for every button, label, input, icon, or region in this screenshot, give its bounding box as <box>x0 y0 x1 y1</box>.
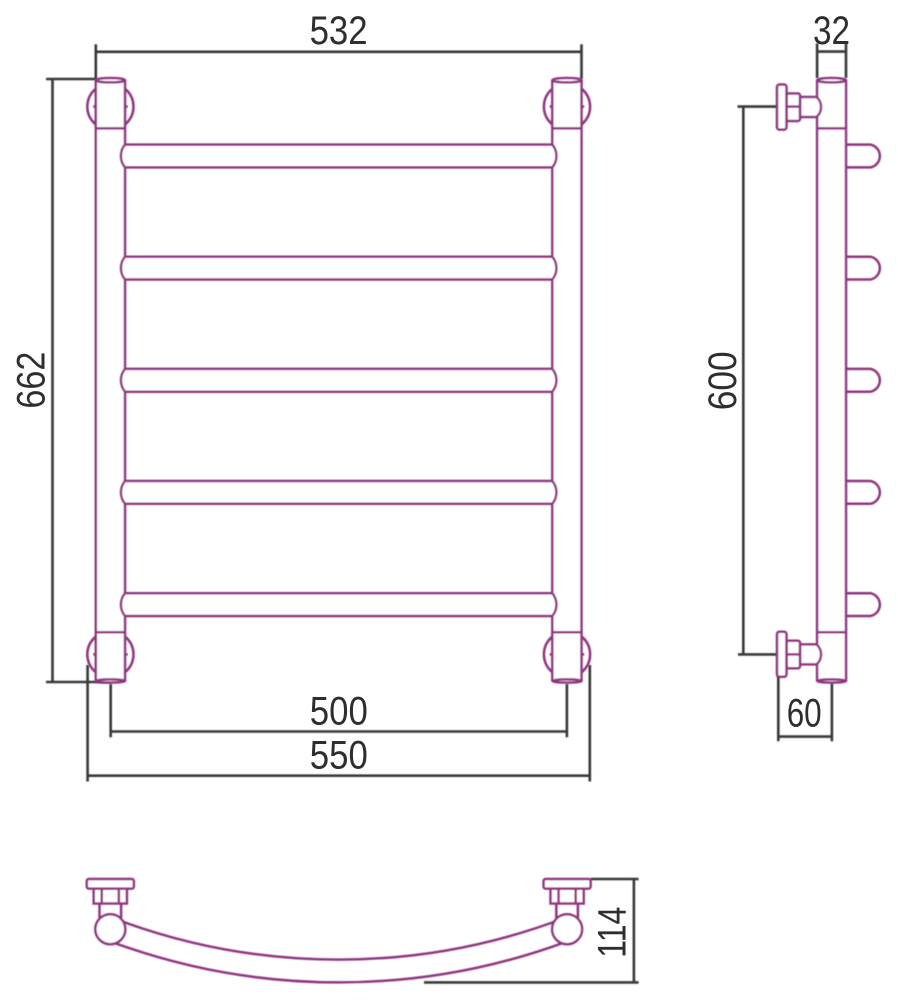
svg-text:550: 550 <box>310 733 368 777</box>
svg-text:114: 114 <box>591 907 635 958</box>
svg-text:32: 32 <box>813 9 850 53</box>
svg-text:500: 500 <box>310 690 368 734</box>
svg-text:600: 600 <box>701 351 745 410</box>
svg-text:662: 662 <box>10 352 54 409</box>
svg-text:532: 532 <box>310 9 368 53</box>
svg-text:60: 60 <box>787 692 822 736</box>
